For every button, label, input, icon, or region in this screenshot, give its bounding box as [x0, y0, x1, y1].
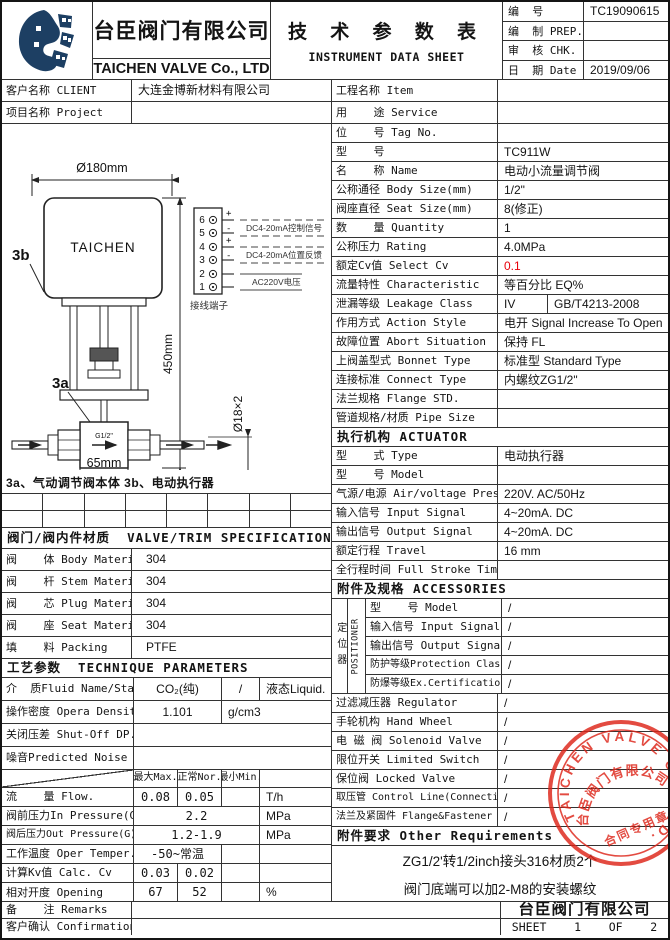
out-pressure-value: 1.2-1.9	[133, 826, 259, 844]
shutoff-value	[133, 724, 331, 746]
in-pressure-label: 阀前压力In Pressure(G)	[2, 807, 133, 825]
positioner-block: 定位器 POSITIONER 型 号 Model / 输入信号 Input Si…	[332, 599, 668, 694]
flow-row: 流 量 Flow. 0.08 0.05 T/h	[2, 788, 331, 807]
terminal-3: 3	[199, 255, 205, 266]
flow-label: 流 量 Flow.	[2, 788, 133, 806]
action-style-label: 作用方式 Action Style	[332, 314, 497, 332]
connect-value: 内螺纹ZG1/2"	[497, 371, 668, 389]
remarks-value	[131, 902, 500, 918]
trim-body-label: 阀 体 Body Material	[2, 549, 131, 570]
trim-seat-value: 304	[131, 615, 331, 636]
date-value: 2019/09/06	[583, 61, 668, 80]
body-size-row: 公称通径 Body Size(mm) 1/2"	[332, 181, 668, 200]
positioner-input-label: 输入信号 Input Signal	[366, 618, 501, 636]
air-voltage-value: 220V. AC/50Hz	[497, 485, 668, 503]
actuator-type-value: 电动执行器	[497, 447, 668, 465]
shutoff-label: 关闭压差 Shut-Off DP.	[2, 724, 133, 746]
model-label: 型 号	[332, 143, 497, 161]
flange-std-value	[497, 390, 668, 408]
drawing-caption: 3a、气动调节阀本体 3b、电动执行器	[6, 474, 214, 491]
trim-body-value: 304	[131, 549, 331, 570]
locked-valve-label: 保位阀 Locked Valve	[332, 770, 497, 788]
opening-row: 相对开度 Opening 67 52 %	[2, 883, 331, 902]
control-line-value: /	[497, 789, 668, 807]
dim-top-label: Ø180mm	[76, 161, 127, 175]
trim-plug-value: 304	[131, 593, 331, 614]
select-cv-value: 0.1	[497, 257, 668, 275]
remarks-label: 备 注 Remarks	[2, 902, 131, 918]
valve-drawing-svg: Ø180mm TAICHEN 3b	[2, 124, 332, 470]
doc-no-row: 编 号 TC19090615	[503, 2, 668, 22]
model-row: 型 号 TC911W	[332, 143, 668, 162]
temperature-value: -50~常温	[133, 845, 221, 863]
trim-packing-label: 填 料 Packing	[2, 637, 131, 658]
shutoff-row: 关闭压差 Shut-Off DP.	[2, 724, 331, 747]
title-block: 技 术 参 数 表 INSTRUMENT DATA SHEET	[270, 2, 502, 79]
trim-row-stem: 阀 杆 Stem Material 304	[2, 571, 331, 593]
trim-seat-label: 阀 座 Seat Material	[2, 615, 131, 636]
terminal-5: 5	[199, 228, 205, 239]
limit-switch-row: 限位开关 Limited Switch /	[332, 751, 668, 770]
abort-label: 故障位置 Abort Situation	[332, 333, 497, 351]
svg-text:-: -	[226, 251, 231, 261]
actuator-model-value	[497, 466, 668, 484]
wire-label-feedback: DC4-20mA位置反馈	[246, 250, 323, 260]
characteristic-row: 流量特性 Characteristic 等百分比 EQ%	[332, 276, 668, 295]
tag-row: 位 号 Tag No.	[332, 124, 668, 143]
sheet-title-en: INSTRUMENT DATA SHEET	[309, 50, 465, 64]
trim-row-seat: 阀 座 Seat Material 304	[2, 615, 331, 637]
opening-label: 相对开度 Opening	[2, 883, 133, 902]
prep-value	[583, 22, 668, 41]
kv-row: 计算Kv值 Calc. Cv 0.03 0.02	[2, 864, 331, 883]
trim-stem-label: 阀 杆 Stem Material	[2, 571, 131, 592]
item-value	[497, 80, 668, 101]
positioner-output-value: /	[501, 637, 668, 655]
callout-3b: 3b	[12, 247, 30, 264]
positioner-protection-label: 防护等级Protection Class	[366, 656, 501, 674]
actuator-section-header: 执行机构 ACTUATOR	[332, 428, 668, 447]
travel-value: 16 mm	[497, 542, 668, 560]
quantity-row: 数 量 Quantity 1	[332, 219, 668, 238]
flow-unit: T/h	[259, 788, 331, 806]
wire-label-control: DC4-20mA控制信号	[246, 223, 322, 233]
actuator-model-label: 型 号 Model	[332, 466, 497, 484]
solenoid-row: 电 磁 阀 Solenoid Valve /	[332, 732, 668, 751]
hand-wheel-label: 手轮机构 Hand Wheel	[332, 713, 497, 731]
in-pressure-value: 2.2	[133, 807, 259, 825]
diagonal-cell	[2, 770, 133, 787]
quantity-label: 数 量 Quantity	[332, 219, 497, 237]
empty-grid-strip	[2, 494, 331, 528]
limit-switch-label: 限位开关 Limited Switch	[332, 751, 497, 769]
output-signal-label: 输出信号 Output Signal	[332, 523, 497, 541]
stroke-time-row: 全行程时间 Full Stroke Time	[332, 561, 668, 580]
pipe-size-row: 管道规格/材质 Pipe Size	[332, 409, 668, 428]
service-row: 用 途 Service	[332, 102, 668, 124]
characteristic-value: 等百分比 EQ%	[497, 276, 668, 294]
action-style-value: 电开 Signal Increase To Open	[497, 314, 668, 332]
temperature-unit	[259, 845, 331, 863]
actuator-type-label: 型 式 Type	[332, 447, 497, 465]
doc-no-value: TC19090615	[583, 2, 668, 21]
trim-row-plug: 阀 芯 Plug Material 304	[2, 593, 331, 615]
fluid-name: CO₂(纯)	[133, 678, 221, 700]
svg-text:-: -	[226, 224, 231, 234]
travel-row: 额定行程 Travel 16 mm	[332, 542, 668, 561]
regulator-label: 过滤减压器 Regulator	[332, 694, 497, 712]
trim-section-header: 阀门/阀内件材质 VALVE/TRIM SPECIFICATION	[2, 528, 331, 549]
air-voltage-label: 气源/电源 Air/voltage Press	[332, 485, 497, 503]
positioner-model-label: 型 号 Model	[366, 599, 501, 617]
input-signal-value: 4~20mA. DC	[497, 504, 668, 522]
date-row: 日 期 Date 2019/09/06	[503, 61, 668, 80]
callout-3a: 3a	[52, 375, 69, 392]
name-row: 名 称 Name 电动小流量调节阀	[332, 162, 668, 181]
pipe-size-label: 管道规格/材质 Pipe Size	[332, 409, 497, 427]
leakage-label: 泄漏等级 Leakage Class	[332, 295, 497, 313]
output-signal-row: 输出信号 Output Signal 4~20mA. DC	[332, 523, 668, 542]
doc-no-label: 编 号	[503, 2, 583, 21]
noise-row: 噪音Predicted Noise	[2, 747, 331, 770]
svg-text:+: +	[226, 209, 232, 219]
seat-size-row: 阀座直径 Seat Size(mm) 8(修正)	[332, 200, 668, 219]
bonnet-row: 上阀盖型式 Bonnet Type 标准型 Standard Type	[332, 352, 668, 371]
other-req-header: 附件要求 Other Requirements	[332, 827, 668, 846]
hand-wheel-value: /	[497, 713, 668, 731]
flow-max: 0.08	[133, 788, 177, 806]
company-block: 台臣阀门有限公司 TAICHEN VALVE Co., LTD	[92, 2, 270, 79]
temperature-label: 工作温度 Oper Temper.	[2, 845, 133, 863]
actuator-model-row: 型 号 Model	[332, 466, 668, 485]
chk-value	[583, 41, 668, 60]
in-pressure-unit: MPa	[259, 807, 331, 825]
input-signal-row: 输入信号 Input Signal 4~20mA. DC	[332, 504, 668, 523]
accessories-header-label: 附件及规格 ACCESSORIES	[332, 580, 668, 598]
opening-unit: %	[259, 883, 331, 902]
confirmation-label: 客户确认 Confirmation	[2, 919, 131, 935]
accessories-section-header: 附件及规格 ACCESSORIES	[332, 580, 668, 599]
trim-plug-label: 阀 芯 Plug Material	[2, 593, 131, 614]
body-size-value: 1/2"	[497, 181, 668, 199]
positioner-model-value: /	[501, 599, 668, 617]
terminal-2: 2	[199, 269, 205, 280]
company-logo-icon	[2, 2, 92, 79]
svg-text:+: +	[226, 236, 232, 246]
positioner-ex-value: /	[501, 675, 668, 693]
air-voltage-row: 气源/电源 Air/voltage Press 220V. AC/50Hz	[332, 485, 668, 504]
actuator-header-label: 执行机构 ACTUATOR	[332, 428, 668, 446]
rating-value: 4.0MPa	[497, 238, 668, 256]
terminal-caption: 接线端子	[190, 300, 229, 312]
right-column: 工程名称 Item 用 途 Service 位 号 Tag No. 型 号 TC…	[332, 80, 668, 901]
fluid-slash: /	[221, 678, 259, 700]
body-size-label: 公称通径 Body Size(mm)	[332, 181, 497, 199]
abort-row: 故障位置 Abort Situation 保持 FL	[332, 333, 668, 352]
seat-size-value: 8(修正)	[497, 200, 668, 218]
tag-label: 位 号 Tag No.	[332, 124, 497, 142]
wire-label-power: AC220V电压	[252, 277, 301, 287]
density-unit: g/cm3	[221, 701, 331, 723]
other-req-notes: ZG1/2'转1/2inch接头316材质2个 阀门底端可以加2-M8的安装螺纹	[332, 846, 668, 901]
solenoid-value: /	[497, 732, 668, 750]
name-value: 电动小流量调节阀	[497, 162, 668, 180]
select-cv-row: 额定Cv值 Select Cv 0.1	[332, 257, 668, 276]
chk-label: 审 核 CHK.	[503, 41, 583, 60]
pipe-size-value	[497, 409, 668, 427]
tag-value	[497, 124, 668, 142]
dim-pipe-label: Ø18×2	[231, 395, 245, 432]
hand-wheel-row: 手轮机构 Hand Wheel /	[332, 713, 668, 732]
left-column: 客户名称 CLIENT 大连金博新材料有限公司 项目名称 Project Ø18…	[2, 80, 332, 901]
other-req-header-label: 附件要求 Other Requirements	[332, 827, 668, 845]
actuator-type-row: 型 式 Type 电动执行器	[332, 447, 668, 466]
confirmation-value	[131, 919, 500, 935]
output-signal-value: 4~20mA. DC	[497, 523, 668, 541]
fluid-row: 介 质Fluid Name/State CO₂(纯) / 液态Liquid.	[2, 678, 331, 701]
prep-row: 编 制 PREP.	[503, 22, 668, 42]
chk-row: 审 核 CHK.	[503, 41, 668, 61]
rating-row: 公称压力 Rating 4.0MPa	[332, 238, 668, 257]
travel-label: 额定行程 Travel	[332, 542, 497, 560]
trim-row-body: 阀 体 Body Material 304	[2, 549, 331, 571]
noise-label: 噪音Predicted Noise	[2, 747, 133, 769]
trim-packing-value: PTFE	[131, 637, 331, 658]
out-pressure-label: 阀后压力Out Pressure(G)	[2, 826, 133, 844]
sheet-title-zh: 技 术 参 数 表	[288, 17, 485, 44]
kv-min	[221, 864, 259, 882]
flange-std-row: 法兰规格 Flange STD.	[332, 390, 668, 409]
quantity-value: 1	[497, 219, 668, 237]
fastener-row: 法兰及紧固件 Flange&Fastener /	[332, 808, 668, 827]
leakage-standard: GB/T4213-2008	[547, 295, 668, 313]
other-req-line1: ZG1/2'转1/2inch接头316材质2个	[403, 850, 598, 870]
remarks-row: 备 注 Remarks 台臣阀门有限公司	[2, 902, 668, 919]
trim-row-packing: 填 料 Packing PTFE	[2, 637, 331, 659]
control-line-label: 取压管 Control Line(Connection.)	[332, 789, 497, 807]
opening-nor: 52	[177, 883, 221, 902]
positioner-label-en: POSITIONER	[347, 599, 365, 693]
footer-company: 台臣阀门有限公司	[500, 902, 668, 918]
service-label: 用 途 Service	[332, 102, 497, 123]
temperature-row: 工作温度 Oper Temper. -50~常温	[2, 845, 331, 864]
technique-section-header: 工艺参数 TECHNIQUE PARAMETERS	[2, 659, 331, 678]
project-label: 项目名称 Project	[2, 102, 131, 123]
locked-valve-row: 保位阀 Locked Valve /	[332, 770, 668, 789]
flange-std-label: 法兰规格 Flange STD.	[332, 390, 497, 408]
other-req-line2: 阀门底端可以加2-M8的安装螺纹	[404, 878, 597, 898]
kv-max: 0.03	[133, 864, 177, 882]
technique-header-label: 工艺参数 TECHNIQUE PARAMETERS	[2, 659, 331, 677]
in-pressure-row: 阀前压力In Pressure(G) 2.2 MPa	[2, 807, 331, 826]
noise-value	[133, 747, 331, 769]
fastener-value: /	[497, 808, 668, 826]
connect-label: 连接标准 Connect Type	[332, 371, 497, 389]
regulator-row: 过滤减压器 Regulator /	[332, 694, 668, 713]
flow-min	[221, 788, 259, 806]
client-label: 客户名称 CLIENT	[2, 80, 131, 101]
col-max-label: 最大Max.	[133, 770, 177, 787]
footer: 备 注 Remarks 台臣阀门有限公司 客户确认 Confirmation S…	[2, 902, 668, 935]
out-pressure-row: 阀后压力Out Pressure(G) 1.2-1.9 MPa	[2, 826, 331, 845]
density-row: 操作密度 Opera Density 1.101 g/cm3	[2, 701, 331, 724]
item-label: 工程名称 Item	[332, 80, 497, 101]
header: 台臣阀门有限公司 TAICHEN VALVE Co., LTD 技 术 参 数 …	[2, 2, 668, 80]
trim-header-label: 阀门/阀内件材质 VALVE/TRIM SPECIFICATION	[2, 528, 331, 548]
locked-valve-value: /	[497, 770, 668, 788]
date-label: 日 期 Date	[503, 61, 583, 80]
density-value: 1.101	[133, 701, 221, 723]
action-style-row: 作用方式 Action Style 电开 Signal Increase To …	[332, 314, 668, 333]
col-min-label: 最小Min.	[221, 770, 259, 787]
model-value: TC911W	[497, 143, 668, 161]
project-value	[131, 102, 331, 123]
name-label: 名 称 Name	[332, 162, 497, 180]
fastener-label: 法兰及紧固件 Flange&Fastener	[332, 808, 497, 826]
service-value	[497, 102, 668, 123]
instrument-data-sheet: 台臣阀门有限公司 TAICHEN VALVE Co., LTD 技 术 参 数 …	[0, 0, 670, 940]
characteristic-label: 流量特性 Characteristic	[332, 276, 497, 294]
limit-switch-value: /	[497, 751, 668, 769]
leakage-class: IV	[497, 295, 547, 313]
terminal-1: 1	[199, 282, 205, 293]
bonnet-value: 标准型 Standard Type	[497, 352, 668, 370]
terminal-4: 4	[199, 242, 205, 253]
terminal-6: 6	[199, 215, 205, 226]
opening-max: 67	[133, 883, 177, 902]
positioner-label-zh: 定位器	[332, 599, 347, 693]
kv-nor: 0.02	[177, 864, 221, 882]
input-signal-label: 输入信号 Input Signal	[332, 504, 497, 522]
project-row: 项目名称 Project	[2, 102, 331, 124]
control-line-row: 取压管 Control Line(Connection.) /	[332, 789, 668, 808]
positioner-protection-value: /	[501, 656, 668, 674]
stroke-time-label: 全行程时间 Full Stroke Time	[332, 561, 497, 579]
regulator-value: /	[497, 694, 668, 712]
rating-label: 公称压力 Rating	[332, 238, 497, 256]
opening-min	[221, 883, 259, 902]
connect-row: 连接标准 Connect Type 内螺纹ZG1/2"	[332, 371, 668, 390]
solenoid-label: 电 磁 阀 Solenoid Valve	[332, 732, 497, 750]
kv-unit	[259, 864, 331, 882]
positioner-input-value: /	[501, 618, 668, 636]
sheet-number: SHEET 1 OF 2	[500, 919, 668, 935]
kv-label: 计算Kv值 Calc. Cv	[2, 864, 133, 882]
valve-drawing: Ø180mm TAICHEN 3b	[2, 124, 331, 494]
stroke-time-value	[497, 561, 668, 579]
bonnet-label: 上阀盖型式 Bonnet Type	[332, 352, 497, 370]
client-value: 大连金博新材料有限公司	[131, 80, 331, 101]
trim-stem-value: 304	[131, 571, 331, 592]
minmax-header-row: 最大Max. 正常Nor. 最小Min.	[2, 770, 331, 788]
seat-size-label: 阀座直径 Seat Size(mm)	[332, 200, 497, 218]
client-row: 客户名称 CLIENT 大连金博新材料有限公司	[2, 80, 331, 102]
flow-nor: 0.05	[177, 788, 221, 806]
positioner-ex-label: 防爆等级Ex.Certification	[366, 675, 501, 693]
density-label: 操作密度 Opera Density	[2, 701, 133, 723]
select-cv-label: 额定Cv值 Select Cv	[332, 257, 497, 275]
dim-width-label: 65mm	[87, 456, 122, 470]
col-nor-label: 正常Nor.	[177, 770, 221, 787]
company-name-en: TAICHEN VALVE Co., LTD	[93, 59, 270, 79]
item-row: 工程名称 Item	[332, 80, 668, 102]
company-name-zh: 台臣阀门有限公司	[93, 2, 270, 59]
doc-meta: 编 号 TC19090615 编 制 PREP. 审 核 CHK. 日 期 Da…	[502, 2, 668, 79]
confirmation-row: 客户确认 Confirmation SHEET 1 OF 2	[2, 919, 668, 935]
port-label: G1/2"	[95, 433, 113, 440]
fluid-state: 液态Liquid.	[259, 678, 331, 700]
positioner-output-label: 输出信号 Output Signal	[366, 637, 501, 655]
dim-height-label: 450mm	[161, 334, 175, 374]
actuator-brand-label: TAICHEN	[70, 240, 135, 255]
abort-value: 保持 FL	[497, 333, 668, 351]
fluid-label: 介 质Fluid Name/State	[2, 678, 133, 700]
out-pressure-unit: MPa	[259, 826, 331, 844]
prep-label: 编 制 PREP.	[503, 22, 583, 41]
leakage-row: 泄漏等级 Leakage Class IV GB/T4213-2008	[332, 295, 668, 314]
